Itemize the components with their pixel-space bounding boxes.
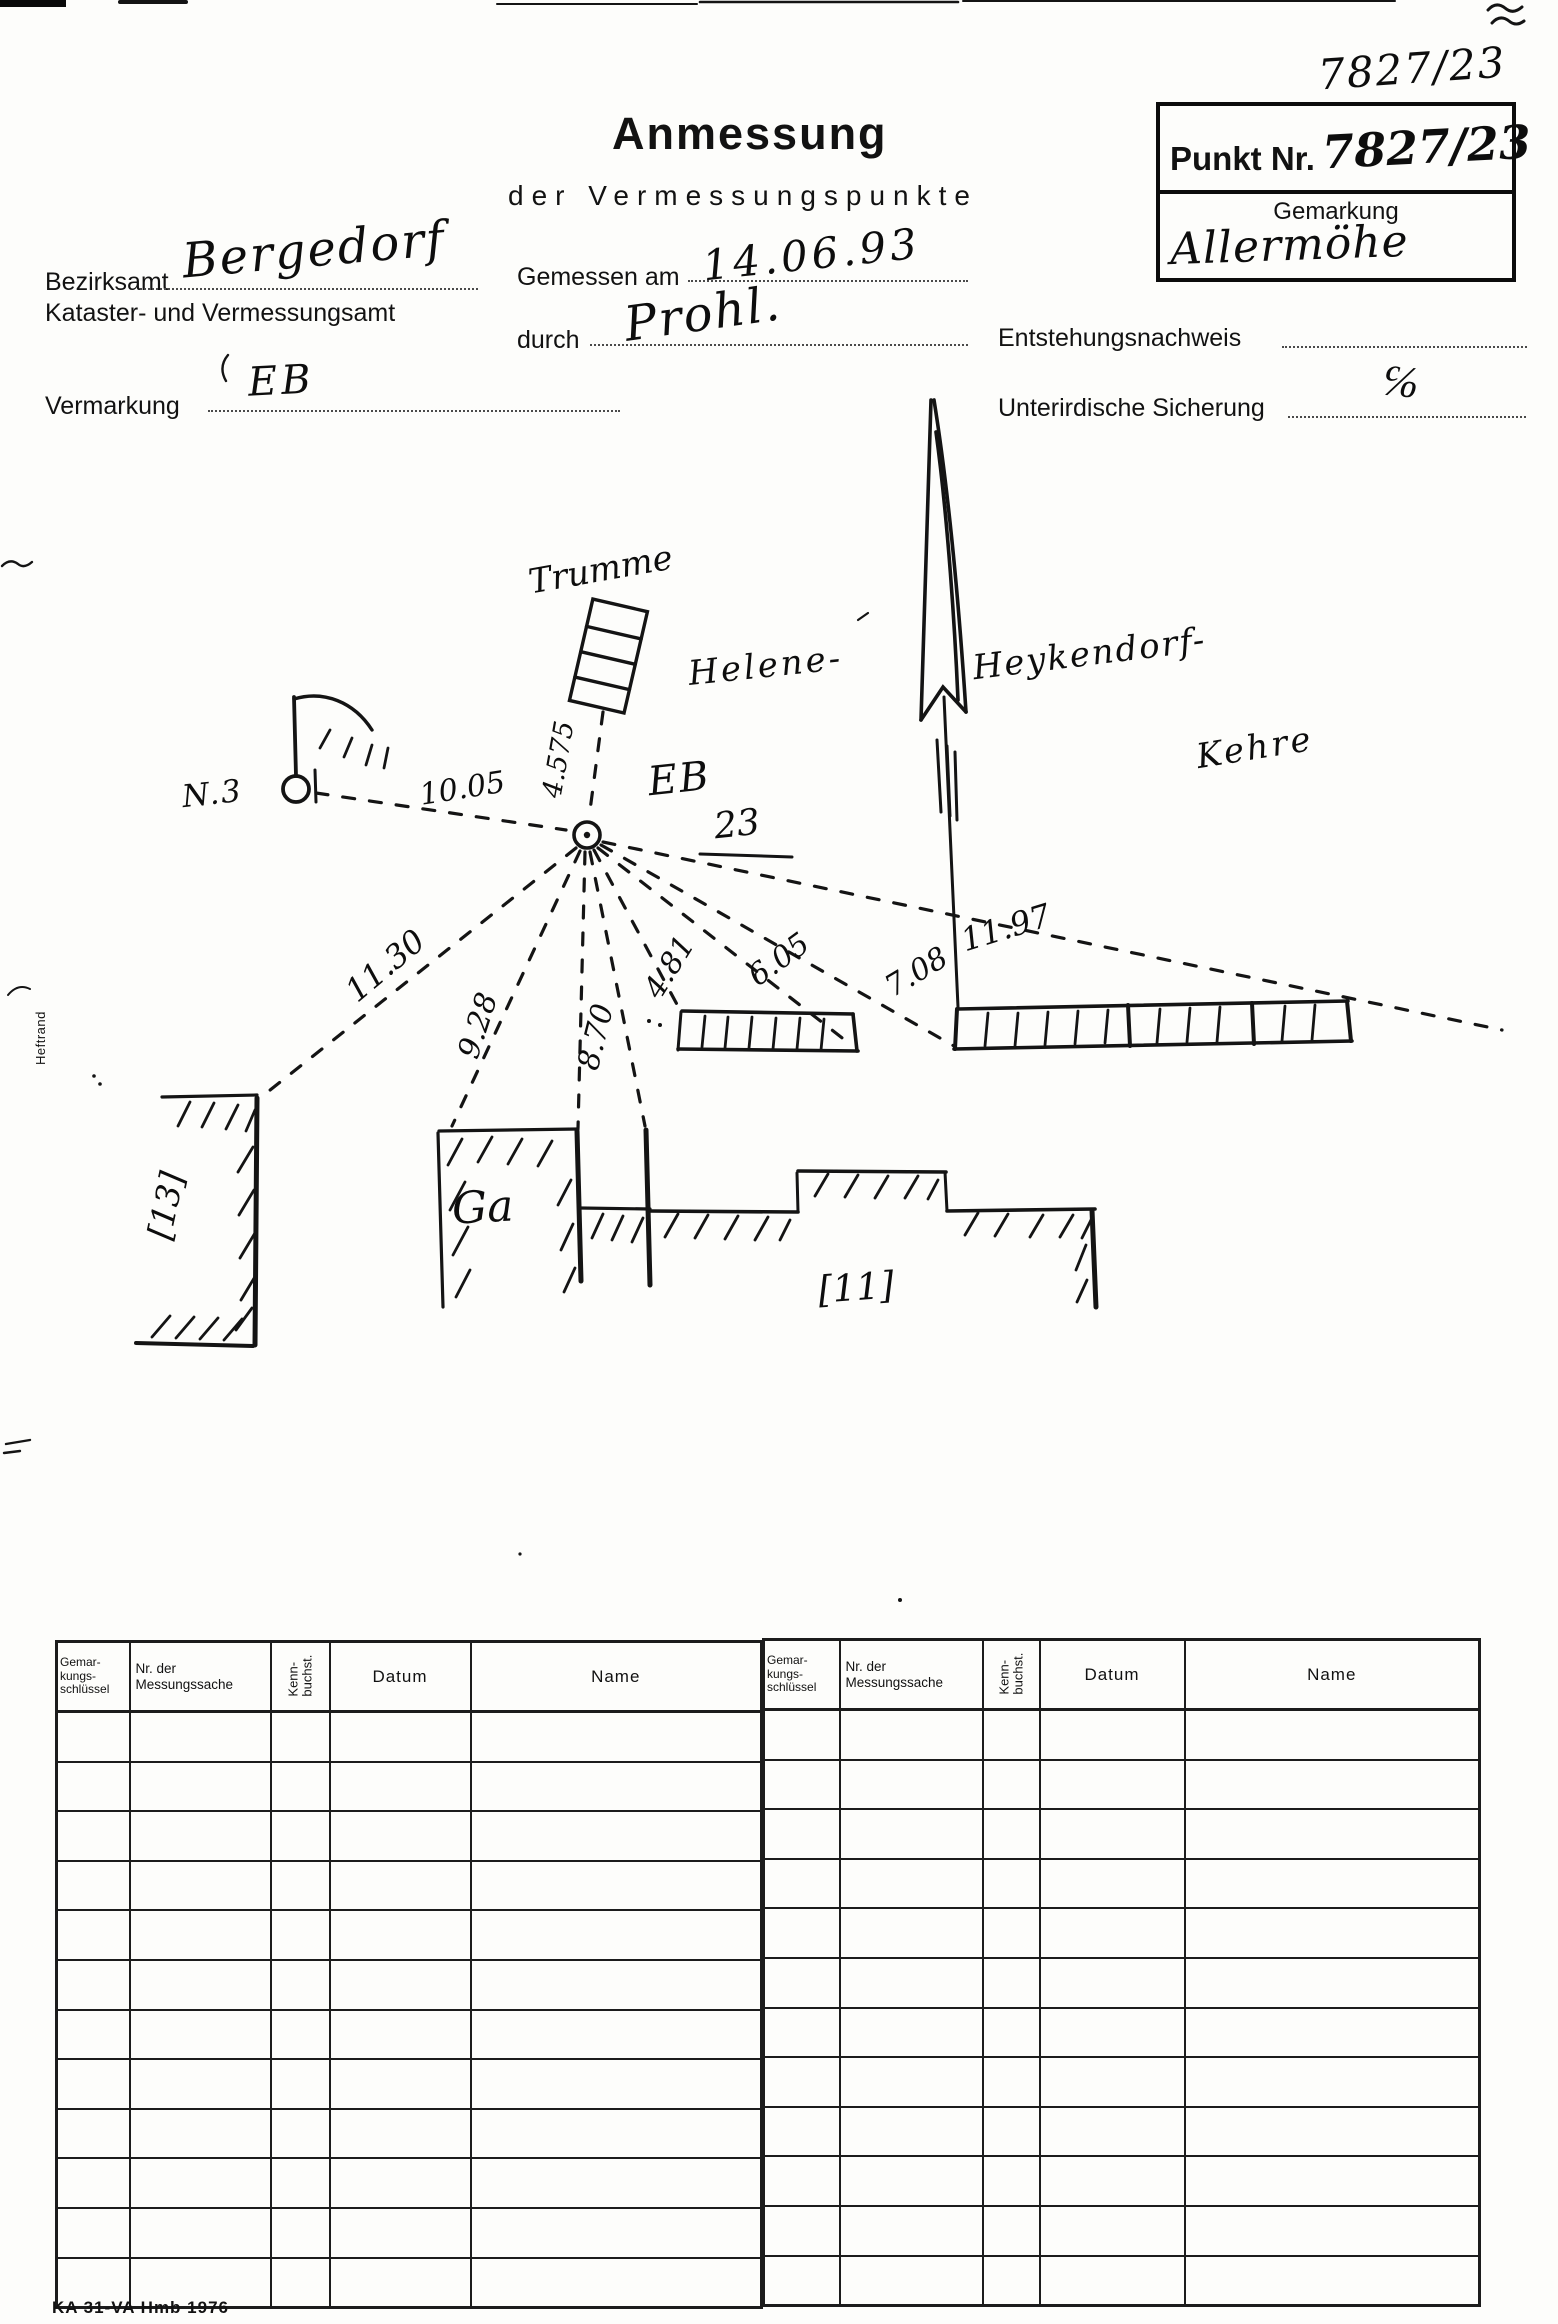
table-cell (840, 1859, 983, 1909)
header-messungssache: Nr. der Messungssache (130, 1642, 271, 1712)
table-cell (271, 2109, 330, 2159)
header-kennbuchstabe-text: Kenn- buchst. (286, 1654, 313, 1696)
table-cell (764, 2206, 840, 2256)
table-cell (471, 2208, 762, 2258)
table-cell (1185, 2206, 1480, 2256)
measure-to-fence1-left: 4.81 (637, 930, 702, 1005)
table-cell (1040, 2107, 1185, 2157)
table-row (57, 1910, 762, 1960)
gemarkung-value: Allermöhe (1169, 216, 1409, 275)
table-cell (764, 1908, 840, 1958)
table-cell (840, 1958, 983, 2008)
margin-label: Heftrand (33, 1011, 48, 1065)
table-cell (471, 1811, 762, 1861)
table-cell (330, 2258, 471, 2308)
table-cell (1040, 2156, 1185, 2206)
table-cell (1040, 1710, 1185, 1760)
table-cell (983, 1760, 1040, 1810)
table-cell (271, 2258, 330, 2308)
house11-label: [11] (817, 1263, 896, 1311)
table-row (764, 1908, 1480, 1958)
table-cell (57, 1712, 130, 1762)
page-subtitle: der Vermessungspunkte (508, 180, 978, 212)
log-table-right: Gemar- kungs- schlüssel Nr. der Messungs… (762, 1638, 1481, 2307)
header-gemarkungsschluessel: Gemar- kungs- schlüssel (764, 1640, 840, 1710)
table-cell (983, 1710, 1040, 1760)
entstehungsnachweis-line (1282, 346, 1527, 348)
table-cell (471, 2258, 762, 2308)
point-type-label: EB (646, 753, 713, 805)
table-cell (1185, 2107, 1480, 2157)
header-kennbuchstabe-text: Kenn- buchst. (997, 1652, 1024, 1694)
table-cell (840, 2156, 983, 2206)
header-gemarkungsschluessel: Gemar- kungs- schlüssel (57, 1642, 130, 1712)
table-row (57, 2010, 762, 2060)
box-divider (1160, 190, 1512, 194)
point-number-box: Punkt Nr. 7827/23 Gemarkung Allermöhe (1156, 102, 1516, 282)
table-cell (57, 1910, 130, 1960)
table-cell (57, 1960, 130, 2010)
table-cell (57, 1811, 130, 1861)
point-number-label: 23 (712, 802, 762, 848)
log-table-left: Gemar- kungs- schlüssel Nr. der Messungs… (55, 1640, 763, 2309)
table-cell (1040, 1809, 1185, 1859)
table-cell (330, 1762, 471, 1812)
table-row (57, 1762, 762, 1812)
unterirdische-sicherung-label: Unterirdische Sicherung (998, 394, 1265, 423)
table-cell (57, 2059, 130, 2109)
table-row (57, 1861, 762, 1911)
table-cell (57, 1861, 130, 1911)
table-cell (983, 2057, 1040, 2107)
table-cell (271, 1960, 330, 2010)
table-cell (1185, 1710, 1480, 1760)
table-cell (840, 1760, 983, 1810)
table-cell (330, 2109, 471, 2159)
gemessen-am-label: Gemessen am (517, 263, 680, 292)
table-cell (983, 1859, 1040, 1909)
table-cell (983, 2256, 1040, 2306)
header-kennbuchstabe: Kenn- buchst. (271, 1642, 330, 1712)
scanned-survey-form: 7827/23 Anmessung der Vermessungspunkte … (0, 0, 1558, 2324)
table-cell (471, 1910, 762, 1960)
fence-2 (954, 1001, 1352, 1049)
table-cell (983, 2156, 1040, 2206)
table-cell (271, 2059, 330, 2109)
table-cell (330, 1861, 471, 1911)
measure-to-garage-left: 9.28 (451, 989, 505, 1063)
table-cell (840, 2206, 983, 2256)
header-datum: Datum (330, 1642, 471, 1712)
garage-label: Ga (451, 1180, 515, 1234)
header-datum: Datum (1040, 1640, 1185, 1710)
table-cell (330, 1712, 471, 1762)
table-cell (57, 2158, 130, 2208)
table-cell (1040, 2256, 1185, 2306)
table-cell (271, 2208, 330, 2258)
table-cell (1185, 1859, 1480, 1909)
table-cell (764, 2057, 840, 2107)
table-cell (1040, 1908, 1185, 1958)
table-cell (1185, 1760, 1480, 1810)
table-cell (271, 1910, 330, 1960)
unterirdische-sicherung-value: ℅ (1379, 354, 1421, 409)
punkt-nr-value: 7827/23 (1321, 115, 1532, 180)
header-name: Name (471, 1642, 762, 1712)
street-name-part3: Kehre (1194, 719, 1317, 777)
table-row (57, 1811, 762, 1861)
north-arrow (921, 400, 966, 1007)
measure-to-drum: 4.575 (537, 719, 581, 801)
table-cell (471, 1960, 762, 2010)
table-row (764, 1710, 1480, 1760)
table-row (764, 2107, 1480, 2157)
table-row (57, 1960, 762, 2010)
table-cell (840, 2107, 983, 2157)
vermarkung-label: Vermarkung (45, 392, 180, 421)
table-cell (471, 2158, 762, 2208)
table-cell (471, 2059, 762, 2109)
table-cell (764, 2256, 840, 2306)
street-lamp-icon (283, 696, 388, 802)
table-cell (130, 2059, 271, 2109)
table-cell (57, 2109, 130, 2159)
table-cell (271, 1762, 330, 1812)
table-cell (840, 2057, 983, 2107)
vermarkung-value: EB (247, 356, 316, 405)
table-cell (840, 1809, 983, 1859)
table-row (57, 2158, 762, 2208)
table-cell (764, 1710, 840, 1760)
vermarkung-line (208, 410, 620, 412)
table-cell (764, 1760, 840, 1810)
table-cell (1040, 1859, 1185, 1909)
table-cell (330, 1910, 471, 1960)
durch-label: durch (517, 326, 580, 355)
table-row (764, 2206, 1480, 2256)
table-cell (764, 1958, 840, 2008)
table-cell (983, 2206, 1040, 2256)
table-cell (330, 1960, 471, 2010)
corner-point-number: 7827/23 (1317, 37, 1508, 99)
form-code-footer: KA 31-VA Hmb 1976 (52, 2298, 229, 2318)
table-cell (1185, 1908, 1480, 1958)
table-cell (471, 1712, 762, 1762)
table-cell (1040, 1958, 1185, 2008)
table-row (764, 1760, 1480, 1810)
table-row (764, 2008, 1480, 2058)
table-cell (1185, 2008, 1480, 2058)
measure-to-lamp: 10.05 (417, 765, 507, 813)
table-row (57, 2208, 762, 2258)
measure-to-garage-right: 8.70 (571, 1000, 621, 1073)
table-cell (764, 2156, 840, 2206)
table-cell (1040, 2206, 1185, 2256)
table-cell (130, 1712, 271, 1762)
entstehungsnachweis-label: Entstehungsnachweis (998, 324, 1241, 353)
durch-line (590, 344, 968, 346)
table-cell (840, 1710, 983, 1760)
table-cell (130, 2208, 271, 2258)
table-row (764, 1958, 1480, 2008)
street-name-part2: Heykendorf- (970, 620, 1208, 688)
measure-to-fence1-right: 6.05 (742, 926, 817, 994)
table-cell (471, 1861, 762, 1911)
table-cell (130, 1910, 271, 1960)
bezirksamt-line (140, 288, 478, 290)
table-cell (764, 1859, 840, 1909)
header-name: Name (1185, 1640, 1480, 1710)
drum-symbol (569, 599, 647, 713)
table-cell (764, 2107, 840, 2157)
table-cell (271, 2158, 330, 2208)
unterirdische-sicherung-line (1288, 416, 1526, 418)
table-row (764, 2256, 1480, 2306)
measure-to-house13: 11.30 (338, 922, 433, 1010)
table-row (57, 1712, 762, 1762)
table-cell (130, 2158, 271, 2208)
table-cell (840, 2256, 983, 2306)
table-cell (840, 1908, 983, 1958)
table-cell (130, 2010, 271, 2060)
table-row (764, 1809, 1480, 1859)
table-cell (330, 2059, 471, 2109)
punkt-nr-label: Punkt Nr. (1170, 140, 1315, 178)
table-cell (271, 1811, 330, 1861)
table-cell (130, 1960, 271, 2010)
table-cell (1185, 2256, 1480, 2306)
table-cell (57, 2208, 130, 2258)
table-cell (1185, 1809, 1480, 1859)
table-cell (983, 1908, 1040, 1958)
table-cell (983, 1809, 1040, 1859)
table-cell (1040, 2008, 1185, 2058)
table-cell (764, 1809, 840, 1859)
table-cell (130, 1861, 271, 1911)
table-cell (1185, 2156, 1480, 2206)
table-cell (840, 2008, 983, 2058)
table-cell (330, 1811, 471, 1861)
kataster-label: Kataster- und Vermessungsamt (45, 299, 395, 328)
table-cell (57, 2010, 130, 2060)
table-row (57, 2059, 762, 2109)
table-row (764, 2156, 1480, 2206)
table-cell (1040, 2057, 1185, 2107)
table-cell (983, 1958, 1040, 2008)
table-row (764, 2057, 1480, 2107)
header-kennbuchstabe: Kenn- buchst. (983, 1640, 1040, 1710)
table-cell (130, 1762, 271, 1812)
bezirksamt-label: Bezirksamt (45, 268, 169, 297)
house13-label: [13] (140, 1168, 192, 1242)
table-cell (271, 1712, 330, 1762)
table-cell (130, 1811, 271, 1861)
bezirksamt-value: Bergedorf (180, 211, 448, 290)
table-cell (271, 1861, 330, 1911)
measure-to-fence2-left: 7.08 (879, 940, 954, 1004)
table-cell (471, 2010, 762, 2060)
fence-1 (678, 1011, 858, 1051)
table-cell (764, 2008, 840, 2058)
table-row (764, 1859, 1480, 1909)
table-cell (1185, 1958, 1480, 2008)
lamp-point-label: N.3 (180, 773, 244, 815)
table-cell (471, 1762, 762, 1812)
drum-label: Trumme (526, 538, 676, 603)
table-cell (1040, 1760, 1185, 1810)
table-cell (983, 2008, 1040, 2058)
table-cell (271, 2010, 330, 2060)
table-cell (330, 2158, 471, 2208)
table-cell (1185, 2057, 1480, 2107)
table-cell (330, 2208, 471, 2258)
street-name-part1: Helene- (686, 638, 845, 694)
page-title: Anmessung (612, 108, 888, 160)
table-cell (983, 2107, 1040, 2157)
table-cell (130, 2109, 271, 2159)
table-cell (57, 1762, 130, 1812)
measure-to-fence2-right: 11.97 (956, 896, 1055, 959)
header-messungssache: Nr. der Messungssache (840, 1640, 983, 1710)
table-cell (471, 2109, 762, 2159)
table-cell (330, 2010, 471, 2060)
table-row (57, 2109, 762, 2159)
